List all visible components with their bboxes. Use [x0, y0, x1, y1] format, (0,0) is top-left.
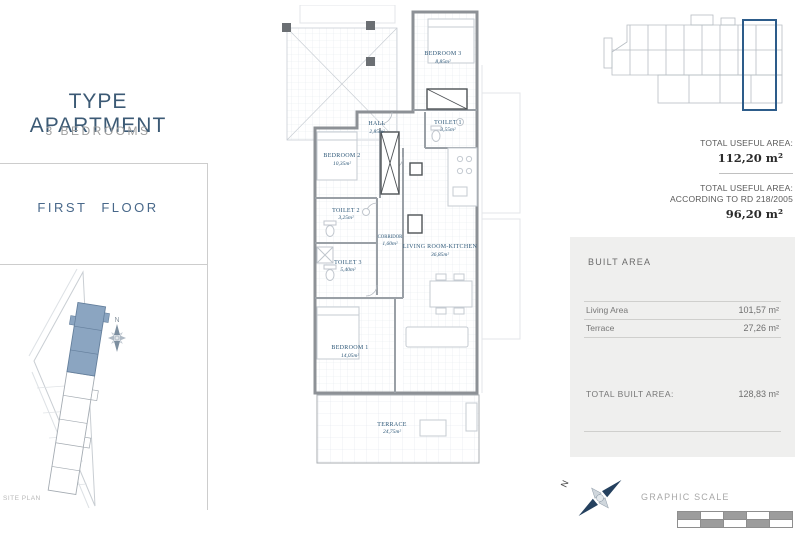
room-label: TOILET 2 [332, 208, 360, 214]
room-label: CORRIDOR [378, 235, 404, 240]
divider-line [584, 319, 781, 320]
room-label: LIVING ROOM-KITCHEN [403, 244, 478, 250]
room-area: 10,35m² [333, 161, 351, 167]
room-label: TOILET 1 [434, 120, 462, 126]
site-compass-icon: N [106, 317, 128, 352]
room-area: 1,60m² [382, 241, 398, 247]
divider-line [584, 337, 781, 338]
table-row-total: TOTAL BUILT AREA: 128,83 m² [586, 389, 779, 399]
compass-north: N [559, 479, 571, 489]
room-label: BEDROOM 1 [331, 345, 368, 351]
room-area: 5,40m² [340, 266, 356, 273]
graphic-scale-label: GRAPHIC SCALE [641, 492, 730, 502]
site-plan: N [25, 268, 235, 508]
room-label: BEDROOM 2 [323, 153, 360, 159]
useful-area-label: TOTAL USEFUL AREA: [565, 138, 793, 149]
row-label: Terrace [586, 323, 614, 333]
room-area: 3,55m² [439, 127, 456, 133]
divider-line [584, 431, 781, 432]
compass-icon: N [556, 466, 651, 530]
key-plan-highlight [743, 20, 776, 110]
floor-plan: BEDROOM 3 8,85m² TOILET 1 3,55m² HALL 2,… [270, 5, 525, 470]
room-area: 24,75m² [383, 428, 401, 435]
room-area: 36,85m² [430, 252, 449, 258]
room-area: 14,05m² [341, 352, 359, 359]
built-area-box: BUILT AREA Living Area 101,57 m² Terrace… [570, 237, 795, 457]
total-built-value: 128,83 m² [738, 389, 779, 399]
page-subtitle: 3 BEDROOMS [0, 124, 196, 138]
key-plan-outline [604, 15, 782, 103]
room-area: 2,85m² [369, 129, 385, 135]
room-label: TOILET 3 [334, 260, 362, 266]
divider-line [584, 301, 781, 302]
useful-area-value: 112,20 m² [565, 151, 783, 165]
built-area-title: BUILT AREA [588, 257, 651, 267]
floor-label: FIRST FLOOR [0, 200, 196, 215]
divider-line [719, 173, 793, 174]
room-area: 3,25m² [337, 215, 354, 221]
key-plan [603, 12, 798, 115]
room-label: HALL [368, 121, 385, 127]
scale-bar [678, 511, 793, 528]
room-area: 8,85m² [435, 59, 451, 65]
divider-line [0, 264, 207, 265]
scale-bar-row [678, 519, 793, 528]
site-building-strip [43, 302, 111, 496]
useful-area-summary: TOTAL USEFUL AREA: 112,20 m² TOTAL USEFU… [565, 138, 793, 229]
table-row: Terrace 27,26 m² [586, 323, 779, 333]
useful-rd-label2: ACCORDING TO RD 218/2005 [565, 194, 793, 205]
total-built-label: TOTAL BUILT AREA: [586, 389, 674, 399]
useful-rd-label: TOTAL USEFUL AREA: [565, 183, 793, 194]
room-label: BEDROOM 3 [424, 51, 461, 57]
site-compass-north: N [114, 317, 119, 324]
site-highlighted-building [62, 302, 110, 377]
row-value: 101,57 m² [738, 305, 779, 315]
room-label: TERRACE [377, 422, 406, 428]
row-value: 27,26 m² [743, 323, 779, 333]
table-row: Living Area 101,57 m² [586, 305, 779, 315]
row-label: Living Area [586, 305, 628, 315]
useful-rd-value: 96,20 m² [565, 207, 783, 221]
divider-line [0, 163, 207, 164]
